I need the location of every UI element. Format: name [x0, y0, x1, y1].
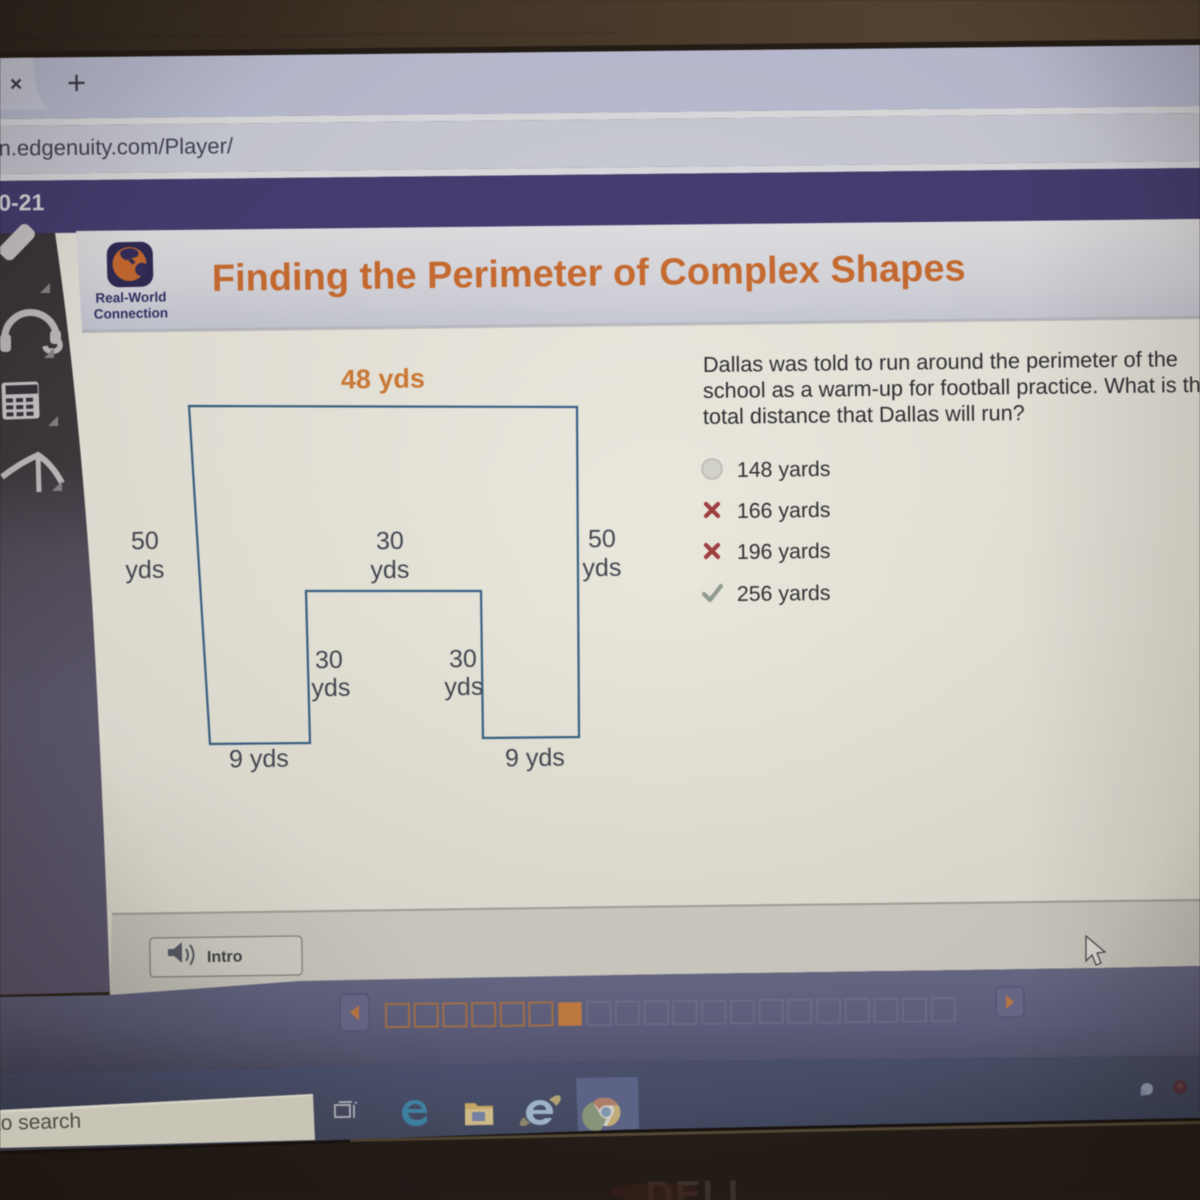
- svg-text:to search: to search: [0, 1110, 81, 1135]
